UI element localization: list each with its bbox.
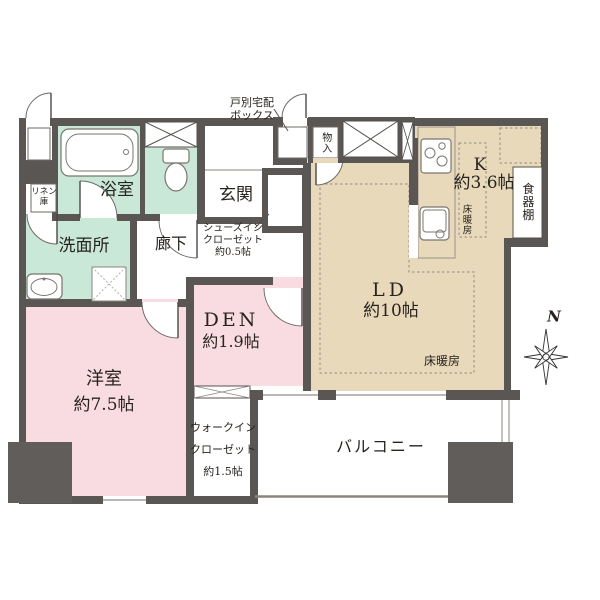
kitchen-floor-heating-label: 床暖房 xyxy=(460,204,471,236)
kitchen-sink-icon xyxy=(420,207,449,240)
cupboard-label: 食器棚 xyxy=(520,183,534,222)
storage-label: 物入 xyxy=(319,132,331,154)
x-closet-1 xyxy=(145,122,197,147)
pillar-southeast xyxy=(448,442,513,503)
pipe-space xyxy=(402,122,413,160)
den-hatch-window xyxy=(194,386,250,398)
stove-icon xyxy=(421,139,451,173)
western-room-label: 洋室 xyxy=(86,370,122,391)
pillar-southwest xyxy=(8,442,72,503)
x-closet-2 xyxy=(343,121,398,157)
delivery-box xyxy=(278,127,307,158)
hallway-label: 廊下 xyxy=(155,235,187,253)
bathtub-icon xyxy=(61,129,138,176)
kitchen-area-label: 約3.6帖 xyxy=(453,174,514,194)
compass-north-label: N xyxy=(547,308,561,325)
floor-plan: 浴室 リネン庫 洗面所 廊下 玄関 シューズイン クローゼット 約0.5帖 戸別… xyxy=(0,0,600,600)
living-dining-area-label: 約10帖 xyxy=(363,302,419,322)
meter-box xyxy=(28,128,50,160)
ld-floor-heating-label: 床暖房 xyxy=(424,355,460,369)
washer-pan xyxy=(92,267,126,301)
delivery-box-label: 戸別宅配 ボックス xyxy=(230,96,274,122)
balcony-label: バルコニー xyxy=(336,438,426,456)
western-room-area-label: 約7.5帖 xyxy=(73,396,134,416)
linen-closet-label: リネン庫 xyxy=(30,188,58,208)
den-label: DEN xyxy=(204,310,259,332)
entrance-label: 玄関 xyxy=(219,186,253,206)
washroom-label: 洗面所 xyxy=(59,237,110,257)
floor-plan-drawing xyxy=(0,0,600,600)
shoes-in-closet-label: シューズイン クローゼット 約0.5帖 xyxy=(203,223,263,259)
walk-in-closet-label: ウォークイン クローゼット 約1.5帖 xyxy=(190,417,256,483)
toilet-icon xyxy=(163,149,189,191)
washbasin-icon xyxy=(27,274,62,299)
bathroom-label: 浴室 xyxy=(100,181,134,201)
den-area-label: 約1.9帖 xyxy=(202,333,259,351)
living-dining-label: LD xyxy=(372,280,408,302)
